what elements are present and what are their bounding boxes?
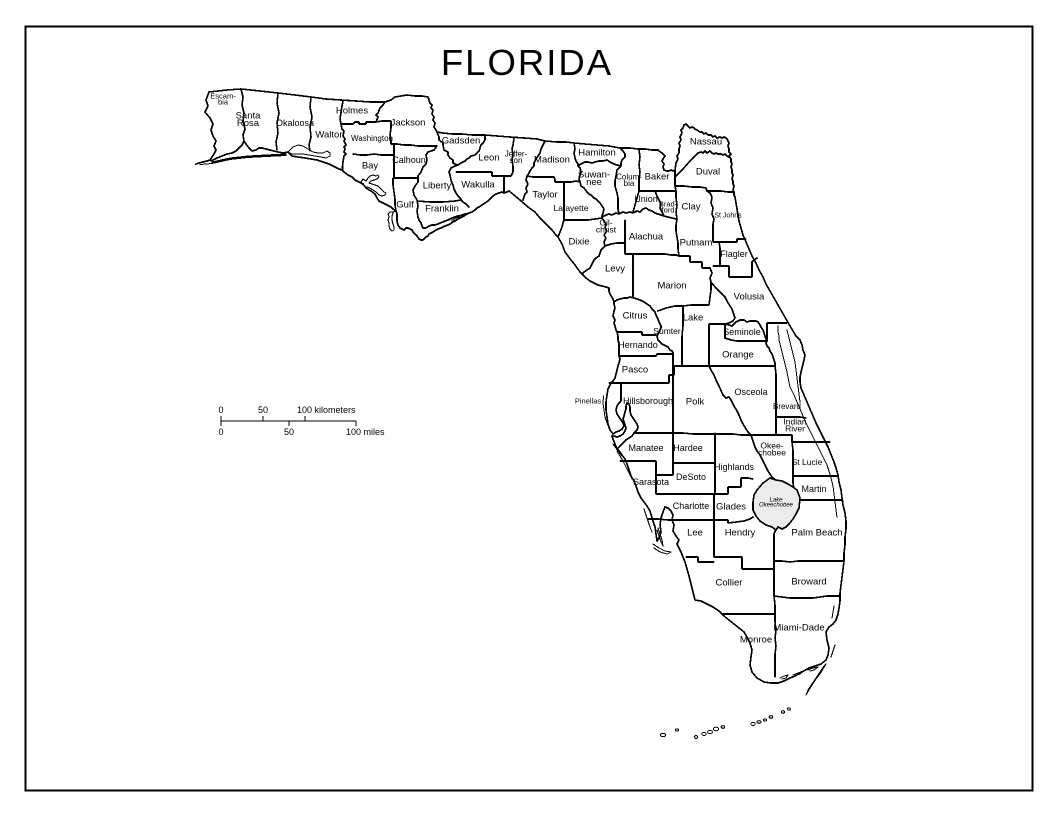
svg-text:Manatee: Manatee (628, 443, 663, 453)
svg-text:Brevard: Brevard (773, 402, 801, 411)
svg-text:Marion: Marion (657, 280, 686, 291)
svg-text:Clay: Clay (681, 201, 700, 212)
svg-text:Taylor: Taylor (532, 189, 557, 200)
svg-text:Okaloosa: Okaloosa (276, 118, 314, 128)
svg-text:Monroe: Monroe (740, 634, 772, 645)
svg-text:Baker: Baker (645, 171, 670, 182)
svg-text:Okeechobee: Okeechobee (759, 503, 794, 509)
svg-text:Lafayette: Lafayette (554, 203, 589, 213)
svg-text:Holmes: Holmes (336, 105, 368, 116)
svg-text:nee: nee (586, 177, 602, 188)
svg-text:Volusia: Volusia (734, 291, 765, 302)
svg-text:Walton: Walton (315, 129, 344, 140)
svg-text:Glades: Glades (716, 501, 746, 512)
svg-text:Nassau: Nassau (690, 136, 722, 147)
svg-text:Wakulla: Wakulla (461, 179, 495, 190)
svg-text:Charlotte: Charlotte (673, 501, 710, 511)
svg-text:Alachua: Alachua (629, 231, 664, 242)
svg-text:christ: christ (596, 225, 617, 235)
svg-text:River: River (785, 424, 805, 434)
svg-text:ford: ford (662, 206, 675, 215)
svg-text:100 kilometers: 100 kilometers (297, 405, 356, 415)
svg-text:Hendry: Hendry (725, 527, 756, 538)
svg-text:Citrus: Citrus (623, 310, 648, 321)
svg-text:Putnam: Putnam (680, 237, 713, 248)
svg-text:Franklin: Franklin (425, 203, 459, 214)
svg-text:Dixie: Dixie (568, 236, 589, 247)
svg-text:Gadsden: Gadsden (442, 135, 481, 146)
svg-text:Liberty: Liberty (423, 180, 452, 191)
svg-text:Hillsborough: Hillsborough (623, 396, 673, 406)
svg-text:Broward: Broward (791, 576, 826, 587)
svg-text:Calhoun: Calhoun (392, 155, 426, 165)
svg-text:Union: Union (634, 194, 658, 204)
svg-text:FLORIDA: FLORIDA (441, 42, 613, 83)
svg-text:bia: bia (624, 179, 635, 188)
svg-text:DeSoto: DeSoto (676, 472, 706, 482)
svg-text:bia: bia (218, 98, 229, 107)
svg-text:Hamilton: Hamilton (578, 147, 616, 158)
svg-text:Gulf: Gulf (396, 199, 414, 210)
svg-text:St Lucie: St Lucie (792, 457, 823, 467)
svg-text:Osceola: Osceola (734, 387, 767, 397)
svg-text:son: son (510, 156, 523, 165)
svg-text:Hardee: Hardee (673, 443, 703, 453)
svg-text:Seminole: Seminole (723, 327, 761, 337)
svg-text:Flagler: Flagler (720, 249, 748, 259)
svg-text:Martin: Martin (801, 484, 826, 494)
svg-text:Rosa: Rosa (237, 118, 260, 129)
svg-text:Lake: Lake (683, 312, 704, 323)
svg-text:Jackson: Jackson (391, 117, 426, 128)
svg-text:chobee: chobee (758, 448, 786, 458)
svg-text:Highlands: Highlands (714, 462, 755, 472)
svg-text:Orange: Orange (722, 349, 754, 360)
svg-text:Collier: Collier (716, 577, 743, 588)
svg-text:St Johns: St Johns (714, 212, 742, 219)
svg-text:Lee: Lee (687, 527, 703, 538)
svg-text:Miami-Dade: Miami-Dade (773, 622, 824, 633)
svg-text:Pinellas: Pinellas (575, 397, 602, 406)
svg-text:Pasco: Pasco (622, 364, 648, 375)
svg-text:100 miles: 100 miles (346, 427, 385, 437)
svg-text:Madison: Madison (534, 154, 570, 165)
svg-text:Washington: Washington (351, 134, 393, 143)
svg-text:50: 50 (258, 405, 268, 415)
svg-text:Hernando: Hernando (618, 340, 658, 350)
svg-text:0: 0 (218, 405, 223, 415)
svg-text:Bay: Bay (362, 160, 379, 171)
svg-text:Levy: Levy (605, 263, 625, 274)
svg-text:Polk: Polk (686, 396, 705, 407)
svg-text:Leon: Leon (478, 152, 499, 163)
svg-text:Sarasota: Sarasota (633, 477, 669, 487)
svg-text:50: 50 (284, 427, 294, 437)
svg-text:Duval: Duval (696, 166, 720, 177)
svg-text:Palm Beach: Palm Beach (791, 527, 842, 538)
svg-text:Sumter: Sumter (653, 326, 681, 336)
svg-text:0: 0 (218, 427, 223, 437)
